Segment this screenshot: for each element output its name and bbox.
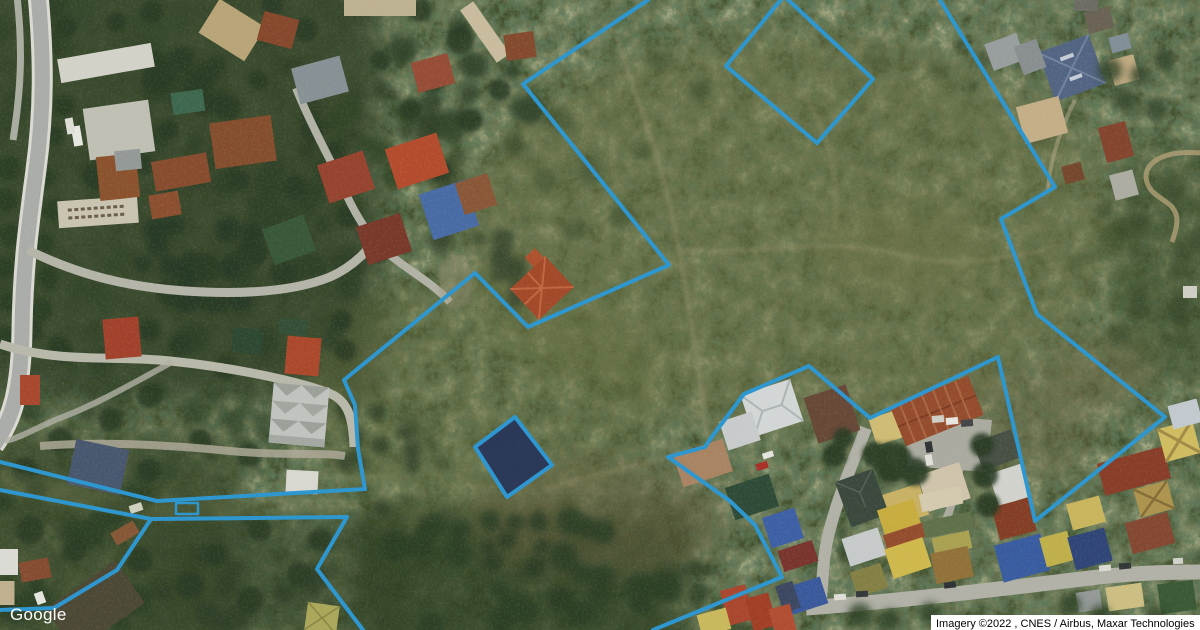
svg-text:Imagery ©2022 , CNES / Airbus,: Imagery ©2022 , CNES / Airbus, Maxar Tec… xyxy=(936,618,1195,630)
svg-text:Google: Google xyxy=(10,605,67,624)
